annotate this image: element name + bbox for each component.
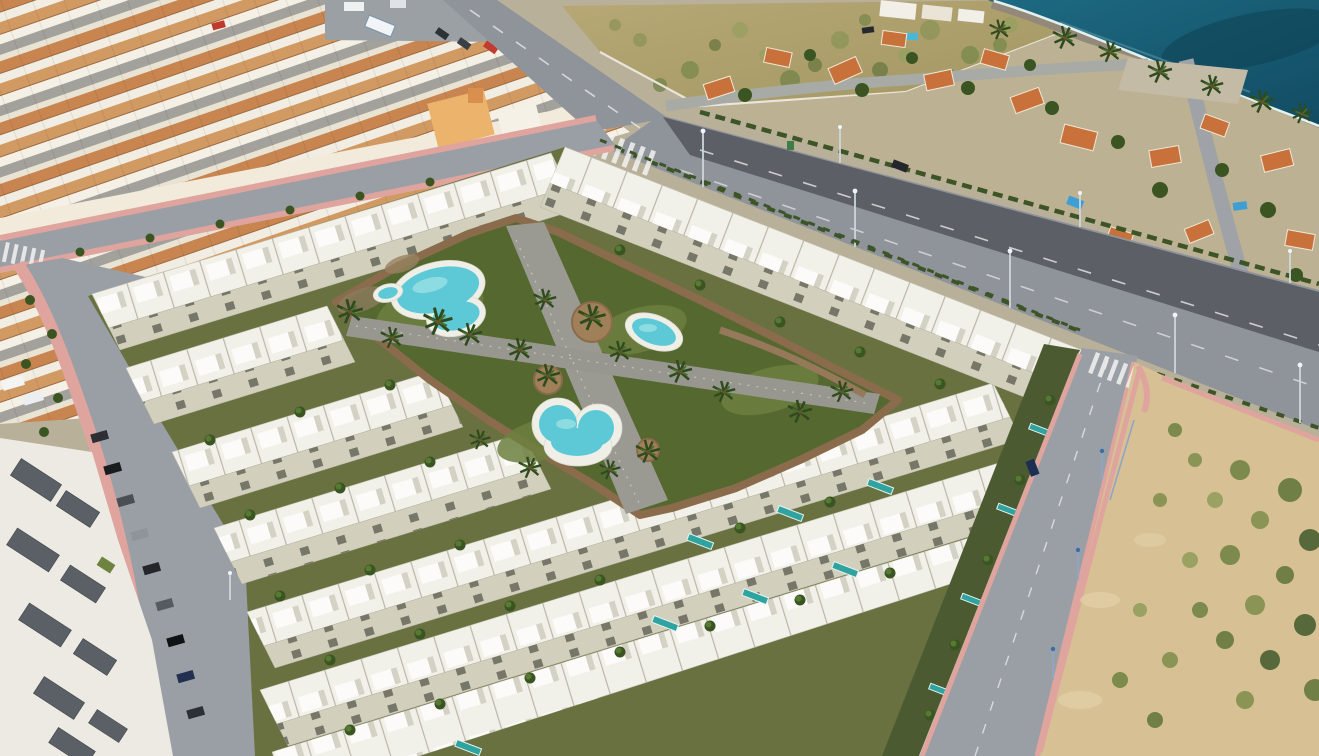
tower [468, 88, 483, 103]
green-bin [787, 141, 794, 150]
aerial-render-image [0, 0, 1319, 756]
truck [344, 2, 364, 11]
scene-canvas [0, 0, 1319, 756]
truck [390, 0, 406, 8]
street-lamp [228, 571, 232, 575]
planter-circle [572, 302, 612, 342]
